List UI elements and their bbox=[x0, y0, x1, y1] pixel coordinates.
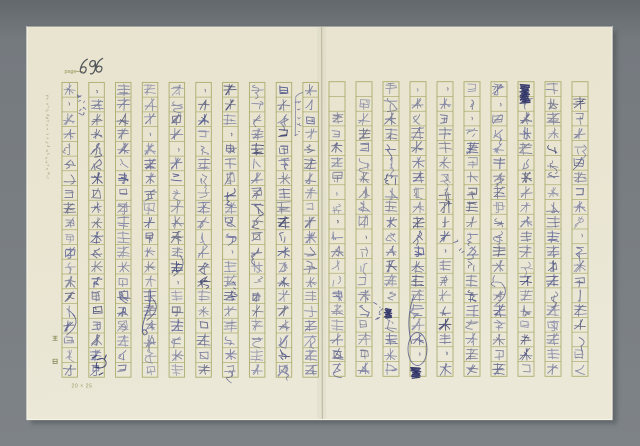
svg-text:20 × 25: 20 × 25 bbox=[72, 384, 93, 390]
svg-text:page: page bbox=[65, 69, 77, 75]
